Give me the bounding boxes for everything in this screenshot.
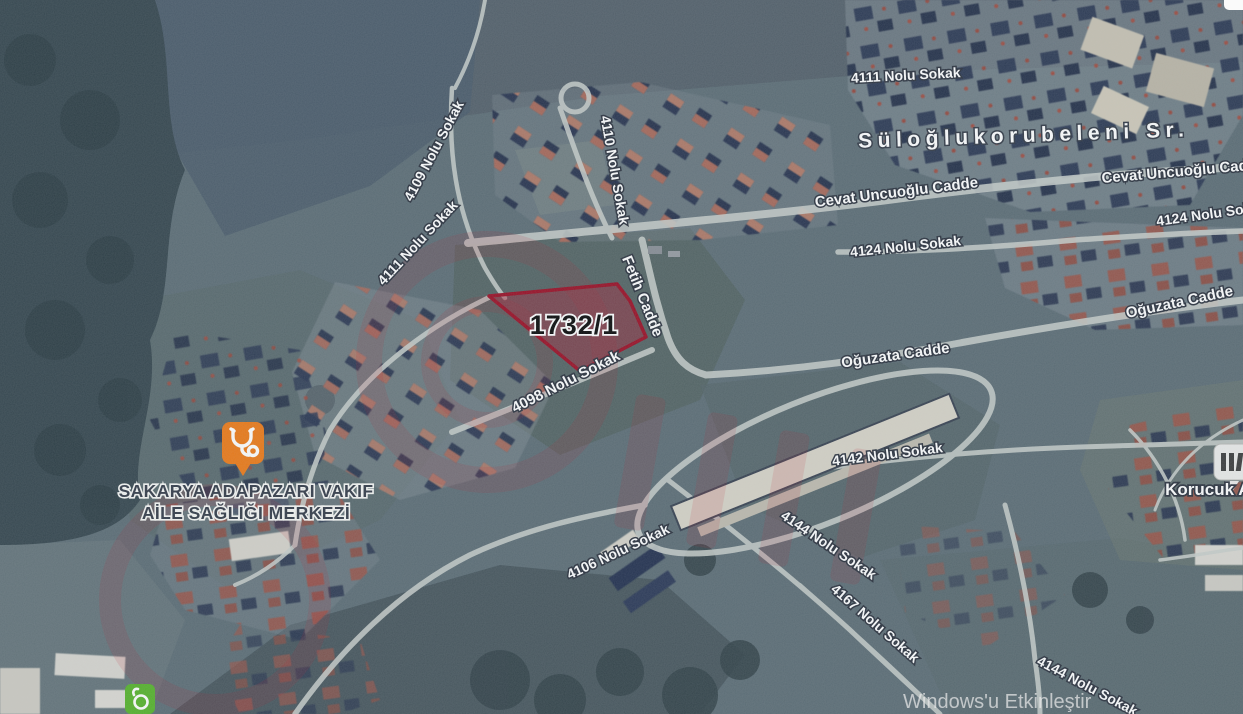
map-viewport: 1732/1 4111 Nolu Sokak Süloğlukorubeleni… xyxy=(0,0,1243,714)
activate-windows-watermark: Windows'u Etkinleştir xyxy=(903,691,1092,713)
satellite-map[interactable]: 1732/1 4111 Nolu Sokak Süloğlukorubeleni… xyxy=(0,0,1243,714)
ui-corner-fragment xyxy=(1224,0,1243,10)
color-cast-overlay xyxy=(0,0,1243,714)
